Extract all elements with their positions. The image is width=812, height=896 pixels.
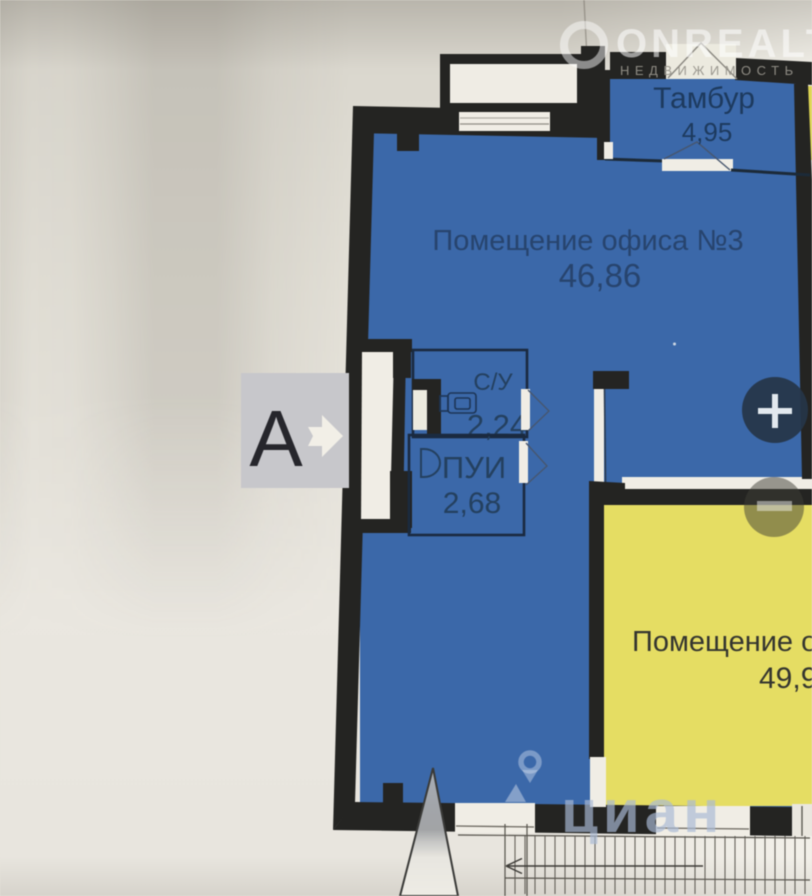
svg-text:A: A (249, 394, 303, 483)
svg-text:С/У: С/У (473, 369, 513, 396)
svg-text:2,24: 2,24 (467, 408, 527, 443)
svg-text:46,86: 46,86 (559, 257, 642, 294)
svg-text:Тамбур: Тамбур (653, 82, 755, 115)
svg-text:ПУИ: ПУИ (442, 450, 506, 485)
svg-text:циан: циан (561, 778, 724, 845)
svg-text:4,95: 4,95 (682, 117, 733, 147)
svg-text:Помещение офиса №4: Помещение офиса №4 (632, 626, 812, 658)
svg-text:2,68: 2,68 (443, 487, 501, 520)
svg-text:ONREALT: ONREALT (616, 22, 812, 66)
svg-text:НЕДВИЖИМОСТЬ: НЕДВИЖИМОСТЬ (620, 63, 799, 78)
svg-text:Помещение офиса №3: Помещение офиса №3 (432, 225, 743, 257)
svg-text:49,97: 49,97 (759, 662, 812, 695)
